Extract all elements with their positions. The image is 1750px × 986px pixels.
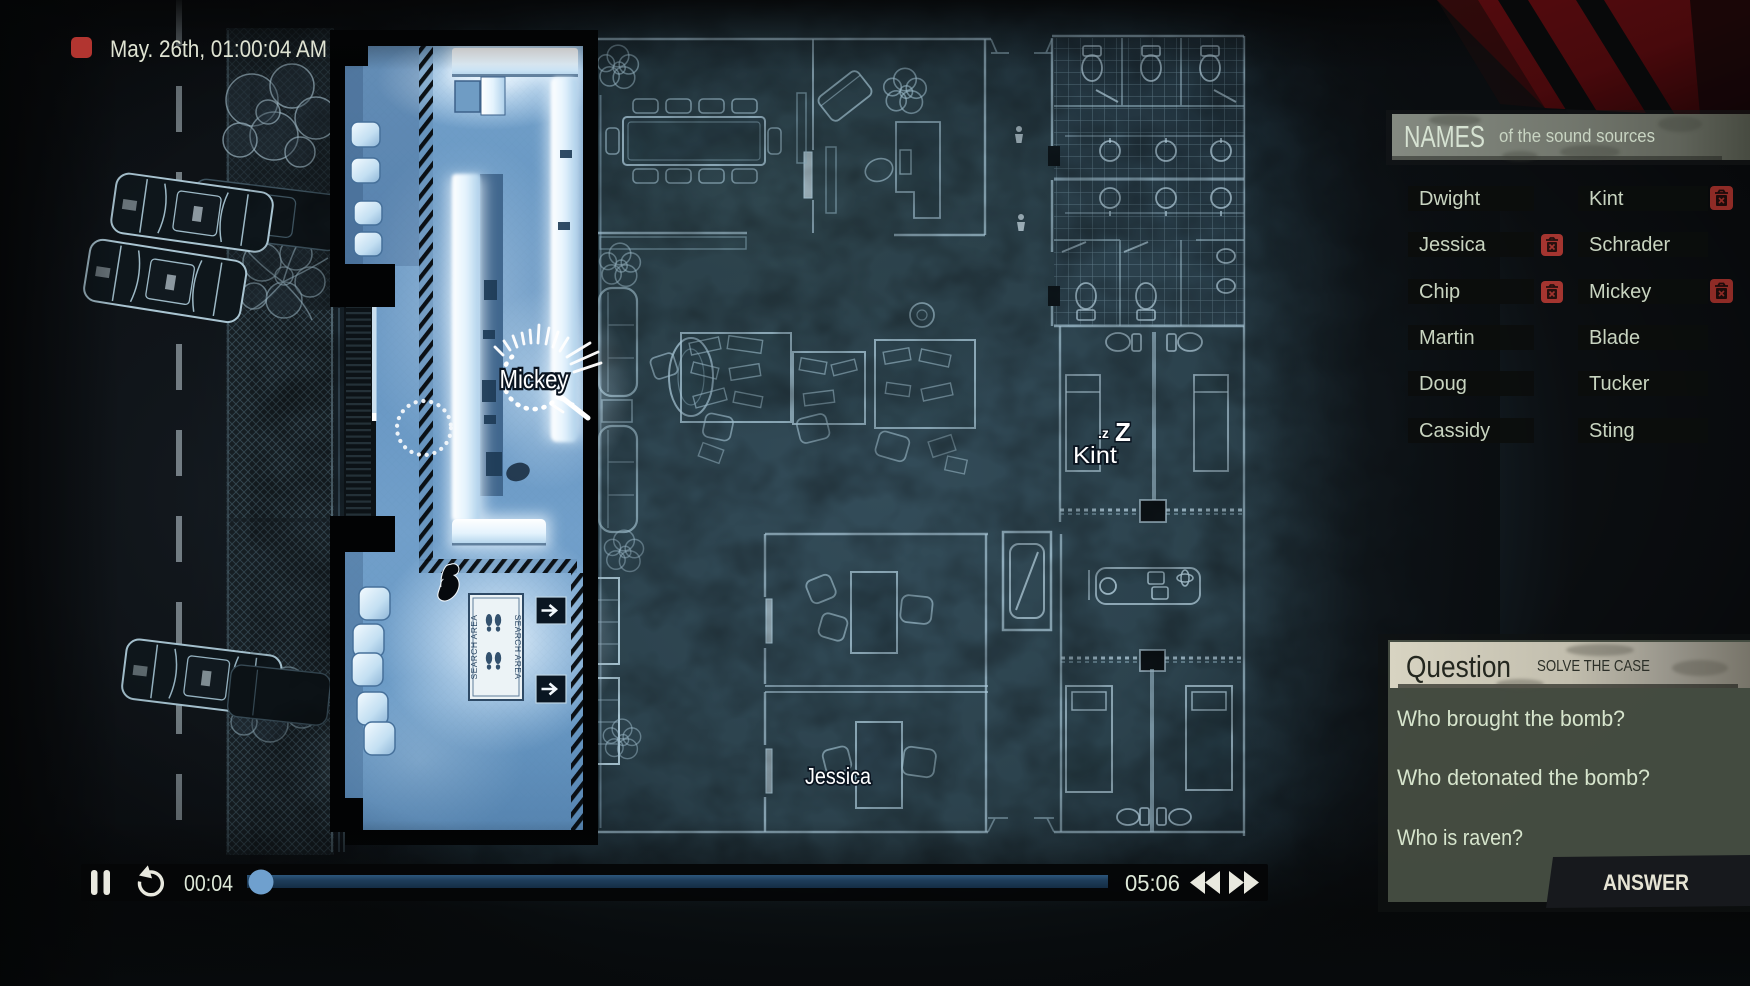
- svg-text:Schrader: Schrader: [1589, 234, 1670, 256]
- svg-text:ANSWER: ANSWER: [1603, 870, 1689, 895]
- svg-text:NAMES: NAMES: [1404, 119, 1485, 154]
- svg-text:Kint: Kint: [1589, 188, 1624, 210]
- svg-text:Who is raven?: Who is raven?: [1397, 825, 1523, 850]
- svg-text:Blade: Blade: [1589, 327, 1640, 349]
- svg-text:SOLVE THE CASE: SOLVE THE CASE: [1537, 658, 1650, 675]
- svg-text:Question: Question: [1406, 649, 1511, 684]
- svg-text:Martin: Martin: [1419, 327, 1475, 349]
- svg-text:05:06: 05:06: [1125, 870, 1180, 896]
- svg-text:May. 26th, 01:00:04 AM: May. 26th, 01:00:04 AM: [110, 36, 327, 63]
- svg-text:Who brought the bomb?: Who brought the bomb?: [1397, 706, 1625, 731]
- svg-text:Dwight: Dwight: [1419, 188, 1481, 210]
- svg-text:Tucker: Tucker: [1589, 373, 1650, 395]
- svg-text:Cassidy: Cassidy: [1419, 420, 1490, 442]
- svg-text:Who detonated the bomb?: Who detonated the bomb?: [1397, 765, 1650, 790]
- svg-text:Doug: Doug: [1419, 373, 1467, 395]
- svg-text:00:04: 00:04: [184, 870, 233, 896]
- svg-text:of the sound sources: of the sound sources: [1499, 126, 1655, 146]
- svg-text:Jessica: Jessica: [1419, 234, 1487, 256]
- svg-text:Chip: Chip: [1419, 281, 1460, 303]
- svg-text:Sting: Sting: [1589, 420, 1635, 442]
- svg-text:Mickey: Mickey: [1589, 281, 1651, 303]
